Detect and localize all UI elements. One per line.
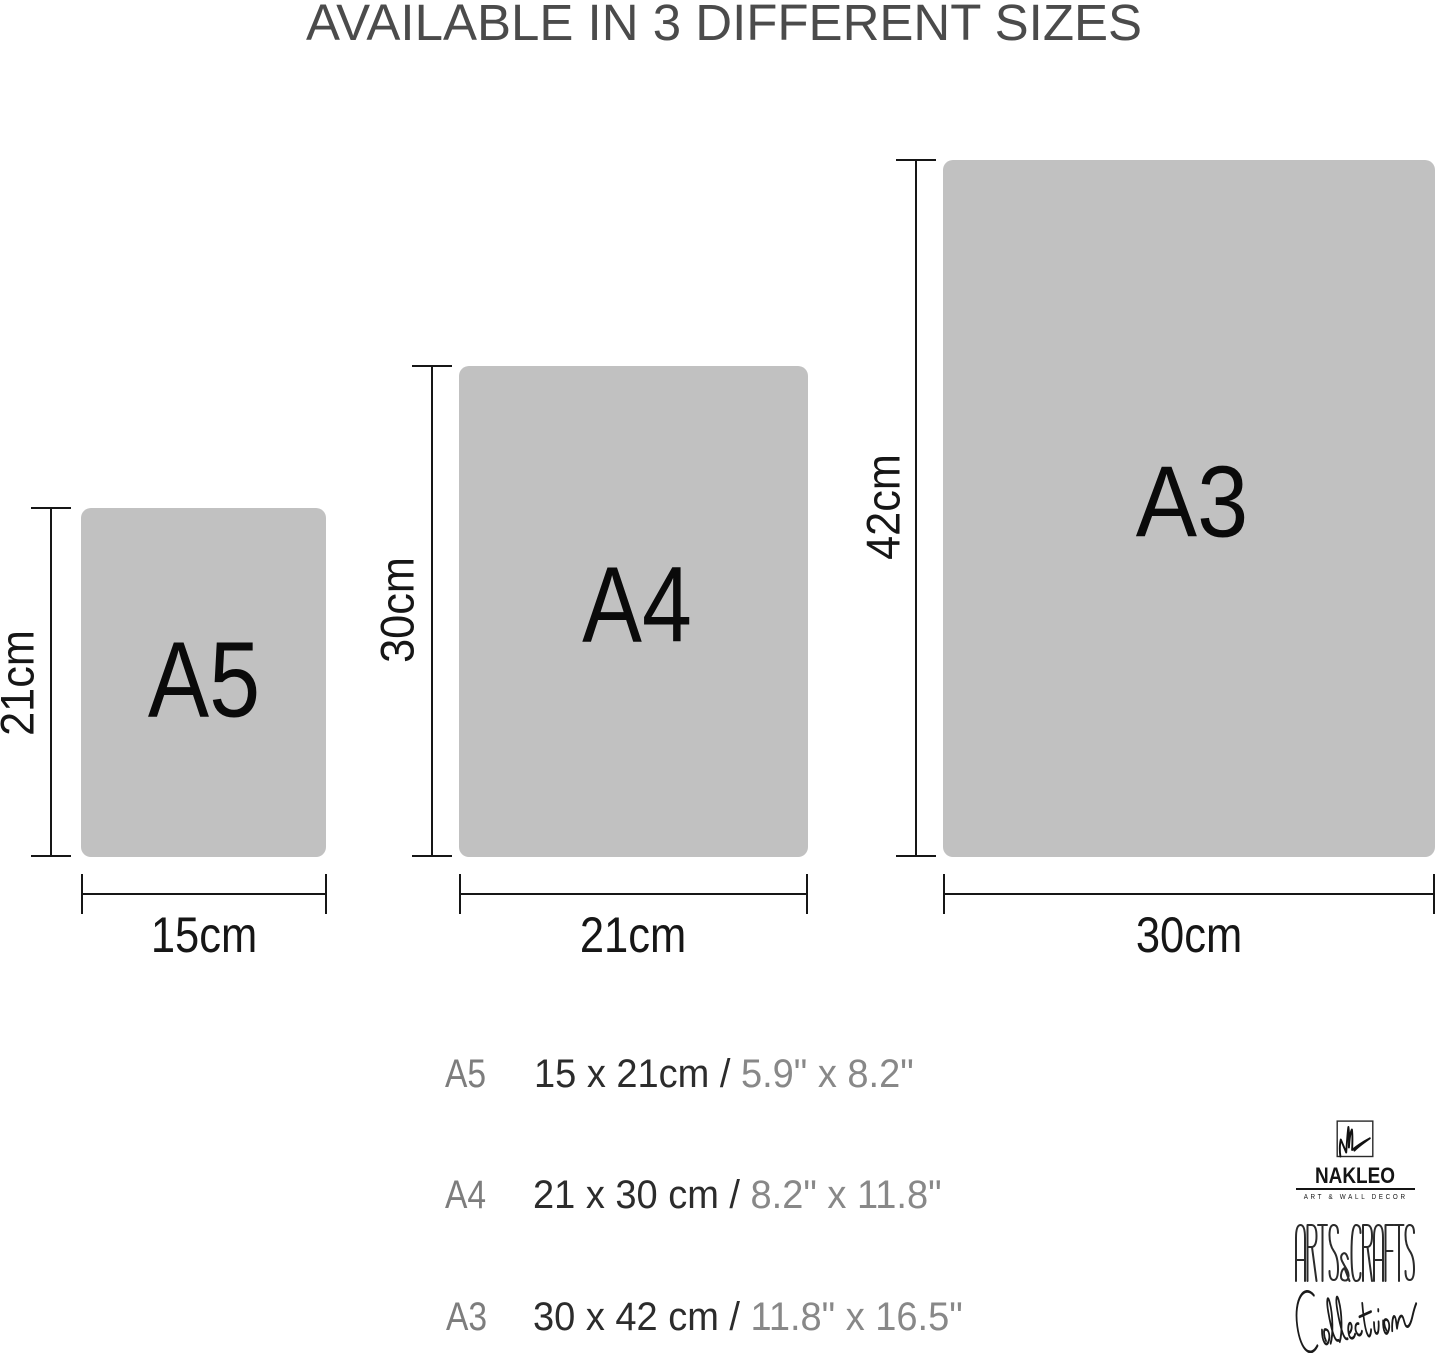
svg-text:NAKLEO: NAKLEO <box>1315 1163 1395 1188</box>
svg-text:ART & WALL DECOR: ART & WALL DECOR <box>1304 1194 1408 1201</box>
